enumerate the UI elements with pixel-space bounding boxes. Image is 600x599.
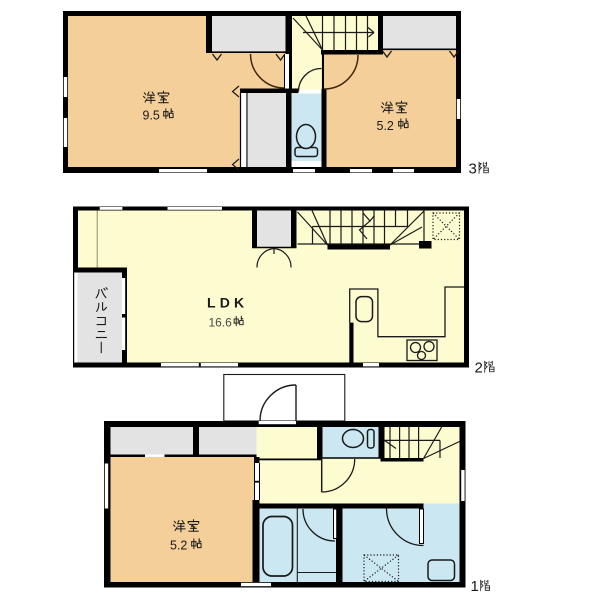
- svg-text:2: 2: [475, 360, 483, 377]
- svg-text:1: 1: [471, 578, 479, 595]
- svg-text:5.2: 5.2: [377, 119, 394, 133]
- svg-text:LDK: LDK: [207, 295, 248, 311]
- svg-text:5.2: 5.2: [170, 539, 187, 553]
- svg-text:16.6: 16.6: [209, 316, 233, 330]
- svg-text:3: 3: [469, 161, 477, 178]
- svg-text:9.5: 9.5: [143, 109, 160, 123]
